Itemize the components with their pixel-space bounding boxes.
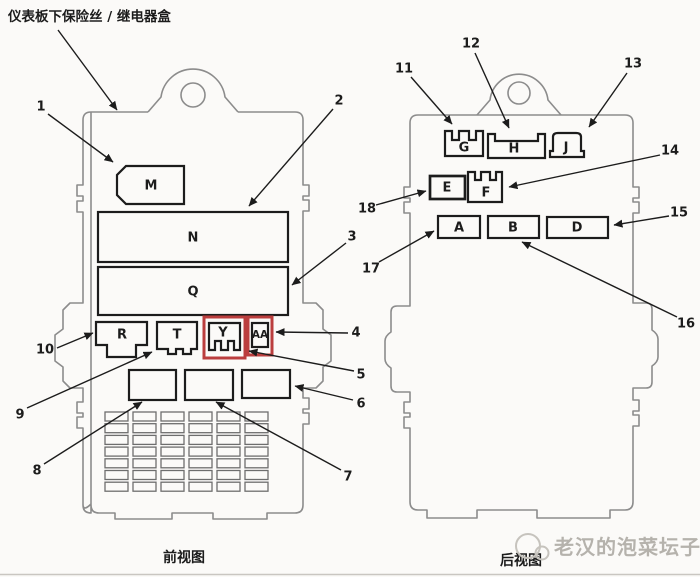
connector-b-label: B [508,221,518,236]
callout-8-number: 8 [32,464,41,479]
fuse-slot [189,482,212,491]
connector-j-label: J [563,141,569,156]
fuse-slot [189,459,212,468]
fuse-slot [161,471,184,480]
watermark: 老汉的泡菜坛子 [516,534,700,560]
fuse-slot [189,424,212,433]
callout-12-line [475,53,509,128]
callout-12-number: 12 [462,37,480,52]
callout-3-line [292,243,346,285]
callout-13-number: 13 [624,57,642,72]
callout-10-number: 10 [36,343,54,358]
fuse-slot [245,482,268,491]
fuse-slot [161,459,184,468]
callout-18-line [376,191,426,205]
fuse-slot [217,424,240,433]
fuse-slot [161,482,184,491]
fuse-slot [161,412,184,421]
fuse-slot [245,459,268,468]
callout-4-line [276,332,348,333]
fuse-slot [189,435,212,444]
connector-d-label: D [572,221,583,236]
connector-f-label: F [482,186,491,201]
connector-h-label: H [509,142,520,157]
front-view: M N Q R T Y AA 1 2 3 4 5 [15,69,365,566]
rear-mounting-tab [477,74,561,115]
connector-r-label: R [117,328,127,343]
callout-1-line [48,114,113,162]
relay-slot-2 [185,370,233,400]
callout-17-number: 17 [362,262,380,277]
fuse-box-diagram: 仪表板下保险丝 / 继电器盒 M N Q R T Y AA [0,0,700,577]
connector-aa-label: AA [252,329,269,341]
callout-3-number: 3 [347,230,356,245]
fuse-slot [189,447,212,456]
relay-m-label: M [145,179,158,194]
callout-16-number: 16 [677,317,695,332]
callout-9-number: 9 [15,408,24,423]
callout-16-line [522,242,677,317]
fuse-slot [217,459,240,468]
fuse-slot [217,435,240,444]
fuse-slot [105,482,128,491]
connector-a-label: A [454,221,464,236]
front-mounting-hole [181,83,205,107]
rear-mounting-hole [508,82,530,104]
connector-g-label: G [459,141,470,156]
fuse-slot [161,424,184,433]
fuse-slot [133,482,156,491]
diagram-title: 仪表板下保险丝 / 继电器盒 [7,8,171,25]
fuse-slot [105,424,128,433]
fuse-slot [105,471,128,480]
callout-15-line [614,216,669,225]
front-view-caption: 前视图 [163,549,205,566]
callout-13-line [589,73,627,127]
callout-11-number: 11 [395,62,413,77]
callout-7-number: 7 [343,470,352,485]
callout-2-number: 2 [334,94,343,109]
connector-y-label: Y [217,326,228,341]
fuse-slot [217,471,240,480]
watermark-text: 老汉的泡菜坛子 [554,535,700,559]
fuse-slot [245,435,268,444]
relay-slot-1 [129,370,176,400]
callout-4-number: 4 [351,326,360,341]
rear-case-outline [385,115,658,518]
title-leader-line [58,30,117,110]
fuse-slot [245,471,268,480]
fuse-slot [105,459,128,468]
fuse-slot [217,482,240,491]
fuse-slot [105,447,128,456]
connector-q-label: Q [187,285,198,300]
fuse-slot [161,435,184,444]
callout-17-line [379,231,434,262]
callout-15-number: 15 [670,206,688,221]
fuse-slot [189,412,212,421]
fuse-slot [217,447,240,456]
connector-n-label: N [188,231,199,246]
callout-5-line [249,351,354,371]
callout-14-line [509,155,660,187]
connector-t-label: T [173,328,182,343]
callout-11-line [411,77,452,124]
callout-18-number: 18 [358,202,376,217]
fuse-slot [133,412,156,421]
front-mounting-tab [148,69,238,112]
fuse-slot [245,447,268,456]
fuse-slot [133,435,156,444]
rear-view: G H J E F A B D 11 12 13 14 15 16 1 [358,37,695,570]
fuse-slot [161,447,184,456]
callout-2-line [249,109,333,206]
callout-5-number: 5 [356,368,365,383]
callout-14-number: 14 [661,144,679,159]
fuse-slot [133,447,156,456]
callout-10-line [57,333,93,348]
callout-6-number: 6 [356,397,365,412]
rear-callouts: 11 12 13 14 15 16 17 18 [358,37,695,332]
fuse-slot [105,435,128,444]
connector-e-label: E [443,181,452,196]
callout-1-number: 1 [36,100,45,115]
fuse-slot [189,471,212,480]
relay-slot-3 [242,370,290,398]
fuse-grid [105,412,268,491]
fuse-slot [133,424,156,433]
fuse-slot [133,471,156,480]
fuse-slot [133,459,156,468]
